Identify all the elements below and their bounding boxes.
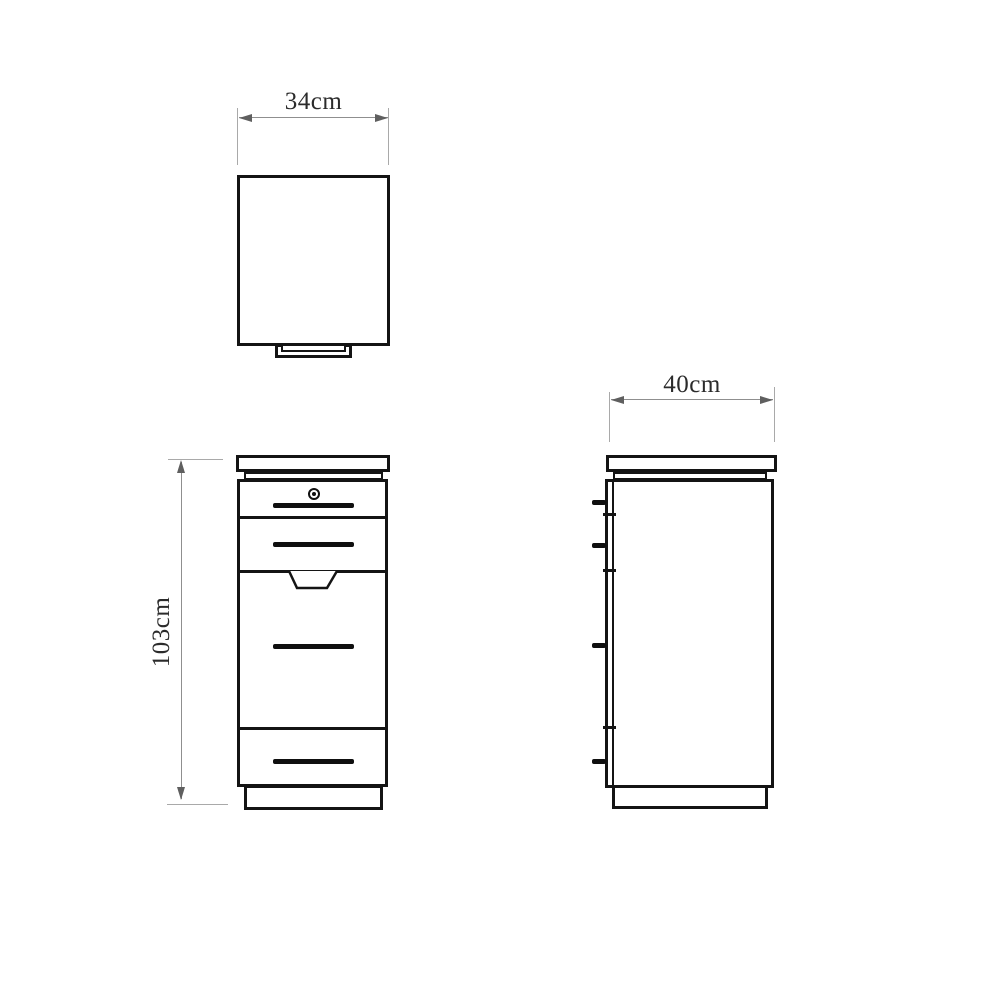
- front-body-outline: [237, 479, 388, 787]
- handle-side-profile: [592, 643, 606, 648]
- side-front-edge-line: [612, 482, 614, 785]
- drawer-joint-tick: [603, 513, 616, 516]
- drawer-divider: [240, 727, 385, 730]
- side-plinth-base: [612, 785, 768, 809]
- dimension-label-40cm: 40cm: [611, 372, 773, 398]
- dimension-line: [239, 117, 388, 118]
- dimension-line: [611, 399, 773, 400]
- handle-side-profile: [592, 759, 606, 764]
- technical-drawing-canvas: 34cm 103cm: [0, 0, 1000, 1000]
- lock-dot: [312, 492, 316, 496]
- handle-side-profile: [592, 500, 606, 505]
- arrowhead-right-icon: [375, 114, 388, 122]
- top-view-foot-inner: [281, 344, 346, 352]
- extension-tick: [167, 804, 228, 805]
- extension-line: [237, 108, 238, 165]
- arrowhead-up-icon: [177, 460, 185, 473]
- recessed-pull-notch: [280, 565, 350, 595]
- side-body-outline: [605, 479, 774, 788]
- arrowhead-down-icon: [177, 787, 185, 800]
- dimension-line: [181, 462, 182, 799]
- dimension-label-103cm: 103cm: [149, 572, 177, 692]
- drawer-handle: [273, 759, 354, 764]
- arrowhead-right-icon: [760, 396, 773, 404]
- side-countertop: [606, 455, 777, 472]
- front-plinth-base: [244, 785, 383, 810]
- extension-line: [388, 108, 389, 165]
- lock-cylinder-icon: [308, 488, 320, 500]
- top-view-outline: [237, 175, 390, 346]
- arrowhead-left-icon: [611, 396, 624, 404]
- drawer-handle: [273, 503, 354, 508]
- drawer-handle: [273, 542, 354, 547]
- dimension-label-34cm: 34cm: [239, 89, 388, 115]
- drawer-divider: [240, 516, 385, 519]
- front-countertop: [236, 455, 390, 472]
- drawer-joint-tick: [603, 569, 616, 572]
- extension-line: [609, 392, 610, 442]
- door-handle: [273, 644, 354, 649]
- drawer-joint-tick: [603, 726, 616, 729]
- handle-side-profile: [592, 543, 606, 548]
- arrowhead-left-icon: [239, 114, 252, 122]
- extension-line: [774, 387, 775, 442]
